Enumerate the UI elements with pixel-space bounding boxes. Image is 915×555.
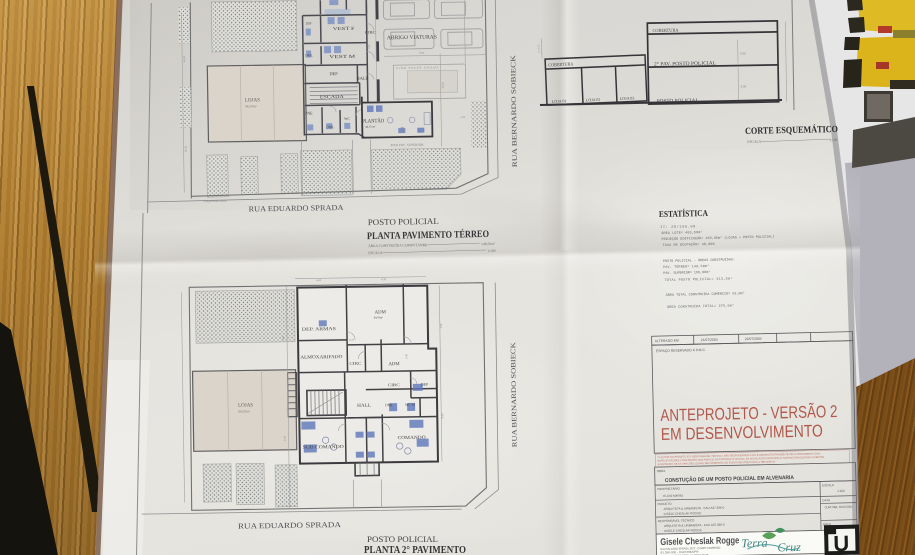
svg-text:1:100: 1:100: [829, 138, 837, 142]
svg-text:DML: DML: [385, 403, 393, 407]
svg-text:VEST M: VEST M: [329, 54, 355, 59]
svg-text:ÁREA TOTAL CONSTRUÍDA COMÉRCIO: ÁREA TOTAL CONSTRUÍDA COMÉRCIO= 63,0m²: [666, 291, 745, 298]
svg-text:LOJA 03: LOJA 03: [620, 95, 635, 101]
svg-text:VEST F: VEST F: [333, 26, 356, 31]
svg-text:ESCADA: ESCADA: [320, 94, 345, 99]
svg-text:3.00: 3.00: [740, 51, 746, 55]
svg-text:ABRIGO VIATURAS: ABRIGO VIATURAS: [387, 34, 437, 41]
svg-text:CURITIBA, 02/42/2004: CURITIBA, 02/42/2004: [825, 505, 853, 510]
svg-text:44,15 m²: 44,15 m²: [365, 125, 375, 128]
svg-text:GISELE CHESLAK ROGGE: GISELE CHESLAK ROGGE: [664, 511, 702, 516]
svg-text:RUA EDUARDO SPRADA: RUA EDUARDO SPRADA: [248, 203, 344, 213]
svg-text:LOJA 02: LOJA 02: [586, 97, 601, 103]
svg-text:ÁREA CONSTRUÍDA COMPUTÁVEL: ÁREA CONSTRUÍDA COMPUTÁVEL: [368, 242, 427, 248]
svg-text:WC M: WC M: [405, 403, 416, 407]
svg-text:PLANTA 2° PAVIMENTO: PLANTA 2° PAVIMENTO: [364, 545, 466, 555]
svg-text:RUA BERNARDO SOBIECK: RUA BERNARDO SOBIECK: [510, 342, 519, 447]
svg-text:ELCIO MARIO: ELCIO MARIO: [663, 494, 683, 498]
svg-text:4.60: 4.60: [281, 335, 285, 341]
svg-text:ALTERADO EM: ALTERADO EM: [655, 339, 679, 344]
svg-text:COBERTURA: COBERTURA: [652, 28, 679, 33]
svg-text:10.00: 10.00: [441, 81, 445, 88]
svg-text:RESPONSÁVEL TÉCNICO: RESPONSÁVEL TÉCNICO: [658, 517, 695, 523]
svg-text:POSTO POLICIAL: POSTO POLICIAL: [368, 216, 439, 227]
svg-text:2.40: 2.40: [404, 353, 408, 359]
svg-text:PNE: PNE: [305, 110, 313, 115]
svg-text:U: U: [833, 531, 849, 555]
svg-text:OBRA: OBRA: [657, 469, 666, 473]
svg-text:4.30: 4.30: [381, 277, 387, 281]
svg-text:ADM: ADM: [375, 310, 387, 315]
svg-text:ÁREA LOTE= 403,59m²: ÁREA LOTE= 403,59m²: [661, 230, 702, 236]
svg-text:POSTO POLICIAL - ÁREAS CONSTRU: POSTO POLICIAL - ÁREAS CONSTRUÍDAS:: [663, 257, 735, 264]
svg-text:LOJAS: LOJAS: [245, 98, 260, 103]
svg-text:ESPAÇO RESERVADO À P.M.C.: ESPAÇO RESERVADO À P.M.C.: [656, 348, 706, 353]
svg-text:PAV. SUPERIOR= 156,00m²: PAV. SUPERIOR= 156,00m²: [663, 271, 710, 276]
svg-text:84,03m²: 84,03m²: [374, 316, 384, 319]
svg-text:4.00: 4.00: [316, 278, 322, 282]
svg-text:PISO PAV. SUPERIOR: PISO PAV. SUPERIOR: [391, 143, 425, 148]
svg-text:ALMOXARIFADO: ALMOXARIFADO: [300, 354, 343, 360]
svg-text:ESTATÍSTICA: ESTATÍSTICA: [659, 208, 709, 219]
svg-text:3.75: 3.75: [349, 338, 355, 342]
svg-text:Calçamento Pedra: Calçamento Pedra: [203, 199, 227, 203]
svg-text:DML: DML: [326, 125, 334, 129]
svg-text:TOTAL POSTO POLICIAL= 313,5m²: TOTAL POSTO POLICIAL= 313,5m²: [664, 277, 732, 283]
svg-text:POSTO POLICIAL: POSTO POLICIAL: [367, 534, 438, 544]
svg-text:CORTE ESQUEMÁTICO: CORTE ESQUEMÁTICO: [745, 123, 838, 137]
svg-text:DML: DML: [305, 53, 313, 57]
svg-text:3.80: 3.80: [439, 323, 443, 329]
svg-text:CIRC: CIRC: [388, 382, 400, 387]
svg-text:ESCALA: ESCALA: [747, 140, 761, 144]
svg-text:ESCALA: ESCALA: [822, 483, 834, 487]
svg-text:PROPRIETÁRIO: PROPRIETÁRIO: [657, 487, 680, 492]
svg-text:RUA EDUARDO SPRADA: RUA EDUARDO SPRADA: [238, 520, 342, 531]
svg-text:3.00: 3.00: [740, 84, 746, 88]
svg-text:DEP: DEP: [421, 382, 429, 387]
svg-text:148,50m²: 148,50m²: [481, 242, 495, 247]
svg-text:GISELE CHESLAK ROGGE: GISELE CHESLAK ROGGE: [664, 528, 702, 533]
svg-text:1:100: 1:100: [837, 489, 845, 493]
svg-text:PISO PAVER GRAMA: PISO PAVER GRAMA: [396, 65, 438, 70]
svg-text:HALL: HALL: [357, 403, 371, 408]
svg-text:HALL: HALL: [356, 76, 368, 81]
svg-text:5.00: 5.00: [460, 115, 466, 119]
svg-text:21/07/2004: 21/07/2004: [701, 338, 718, 342]
svg-text:ARQUITETA & URBANISTA - CAU: ARQUITETA & URBANISTA - CAU A37.396-0: [663, 506, 724, 511]
svg-text:EM DESENVOLVIMENTO: EM DESENVOLVIMENTO: [661, 421, 823, 444]
svg-text:1:100: 1:100: [487, 249, 495, 253]
svg-text:IT: ZR/100.00: IT: ZR/100.00: [660, 224, 695, 230]
svg-text:PLANTA PAVIMENTO TÉRREO: PLANTA PAVIMENTO TÉRREO: [367, 228, 489, 242]
svg-text:8.00: 8.00: [419, 51, 425, 55]
svg-text:CIRC: CIRC: [365, 30, 377, 34]
svg-text:ARQUITETA & URBANISTA - CAU: ARQUITETA & URBANISTA - CAU A37.396-0: [664, 523, 725, 528]
svg-text:2BF: 2BF: [306, 21, 312, 25]
svg-text:COBERTURA: COBERTURA: [548, 61, 574, 67]
svg-text:7.80: 7.80: [367, 44, 371, 50]
svg-text:ADM: ADM: [388, 362, 400, 367]
svg-text:45.00: 45.00: [182, 55, 186, 62]
svg-text:15.00: 15.00: [184, 145, 188, 152]
svg-text:PLANTÃO: PLANTÃO: [362, 116, 384, 124]
svg-text:DEP. ARMAS: DEP. ARMAS: [302, 326, 337, 332]
svg-text:8.00: 8.00: [440, 413, 444, 419]
svg-text:WC: WC: [344, 117, 350, 121]
svg-text:ESCALA: ESCALA: [368, 251, 382, 255]
svg-text:6.20: 6.20: [283, 435, 287, 441]
svg-text:RUA BERNARDO SOBIECK: RUA BERNARDO SOBIECK: [510, 55, 519, 167]
svg-text:LOJAS: LOJAS: [238, 403, 253, 408]
svg-text:PROJETO: PROJETO: [657, 502, 672, 506]
svg-text:SUB COMANDO: SUB COMANDO: [303, 444, 345, 450]
svg-text:h=3,00: h=3,00: [536, 44, 540, 53]
svg-text:TAXA DE OCUPAÇÃO= 40,00%: TAXA DE OCUPAÇÃO= 40,00%: [663, 242, 716, 248]
svg-text:DATA: DATA: [822, 498, 830, 502]
svg-text:LOJA 01: LOJA 01: [552, 98, 567, 104]
svg-text:PAV. TÉRREO= 148,50m²: PAV. TÉRREO= 148,50m²: [663, 264, 709, 270]
svg-text:CIRC: CIRC: [349, 361, 361, 366]
svg-text:Terra: Terra: [741, 536, 768, 551]
svg-text:22/07/2004: 22/07/2004: [745, 337, 762, 341]
svg-text:ÁREA CONSTRUÍDA TOTAL= 376,5m²: ÁREA CONSTRUÍDA TOTAL= 376,5m²: [667, 303, 734, 310]
svg-text:DEP: DEP: [329, 71, 338, 76]
svg-text:COMANDO: COMANDO: [398, 435, 427, 440]
